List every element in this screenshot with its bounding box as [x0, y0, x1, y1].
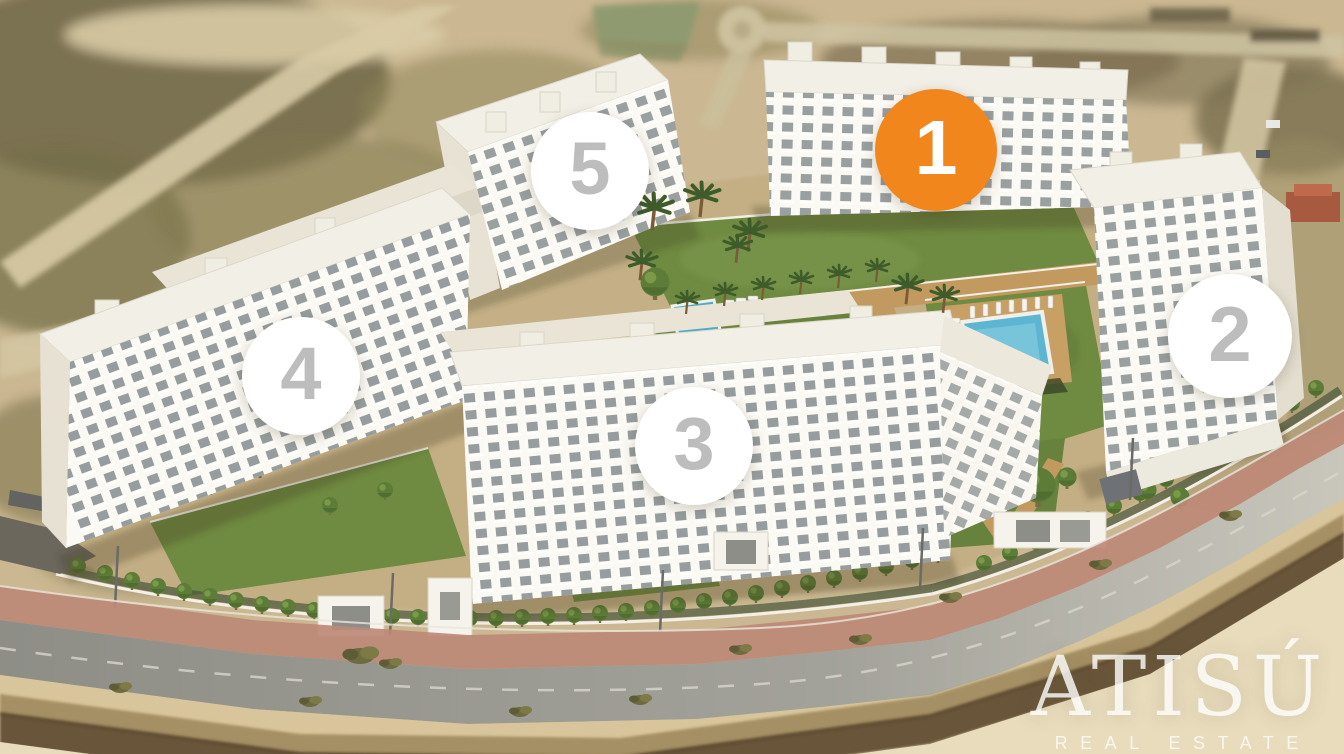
phase-marker-1-label: 1 — [915, 110, 958, 187]
phase-marker-5[interactable]: 5 — [531, 112, 649, 230]
phase-marker-2-label: 2 — [1208, 295, 1251, 373]
aerial-render — [0, 0, 1344, 754]
phase-marker-4-label: 4 — [280, 337, 321, 411]
development-site-plan: 1 2 3 4 5 ATISÚ REAL ESTATE — [0, 0, 1344, 754]
phase-marker-3-label: 3 — [673, 407, 714, 481]
phase-marker-5-label: 5 — [569, 132, 610, 206]
phase-marker-1[interactable]: 1 — [875, 89, 997, 211]
phase-marker-4[interactable]: 4 — [242, 317, 360, 435]
phase-marker-2[interactable]: 2 — [1168, 274, 1292, 398]
distant-red-building — [1286, 192, 1340, 222]
phase-marker-3[interactable]: 3 — [635, 387, 753, 505]
